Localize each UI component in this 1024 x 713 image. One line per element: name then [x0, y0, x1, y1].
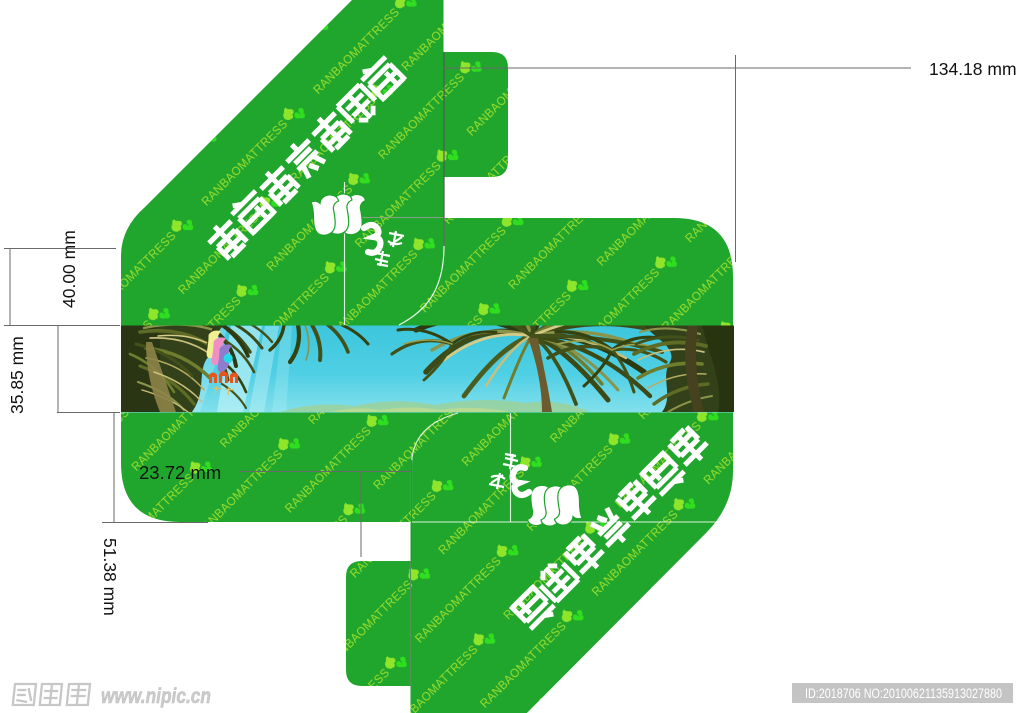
svg-text:ID:2018706 NO:2010062113591302: ID:2018706 NO:20100621135913027880	[805, 686, 1002, 701]
svg-text:51.38 mm: 51.38 mm	[100, 538, 120, 616]
svg-text:35.85 mm: 35.85 mm	[7, 336, 27, 414]
svg-text:40.00 mm: 40.00 mm	[59, 230, 79, 308]
svg-text:23.72 mm: 23.72 mm	[139, 462, 221, 483]
svg-text:www.nipic.cn: www.nipic.cn	[101, 685, 211, 708]
svg-text:134.18 mm: 134.18 mm	[929, 59, 1017, 79]
